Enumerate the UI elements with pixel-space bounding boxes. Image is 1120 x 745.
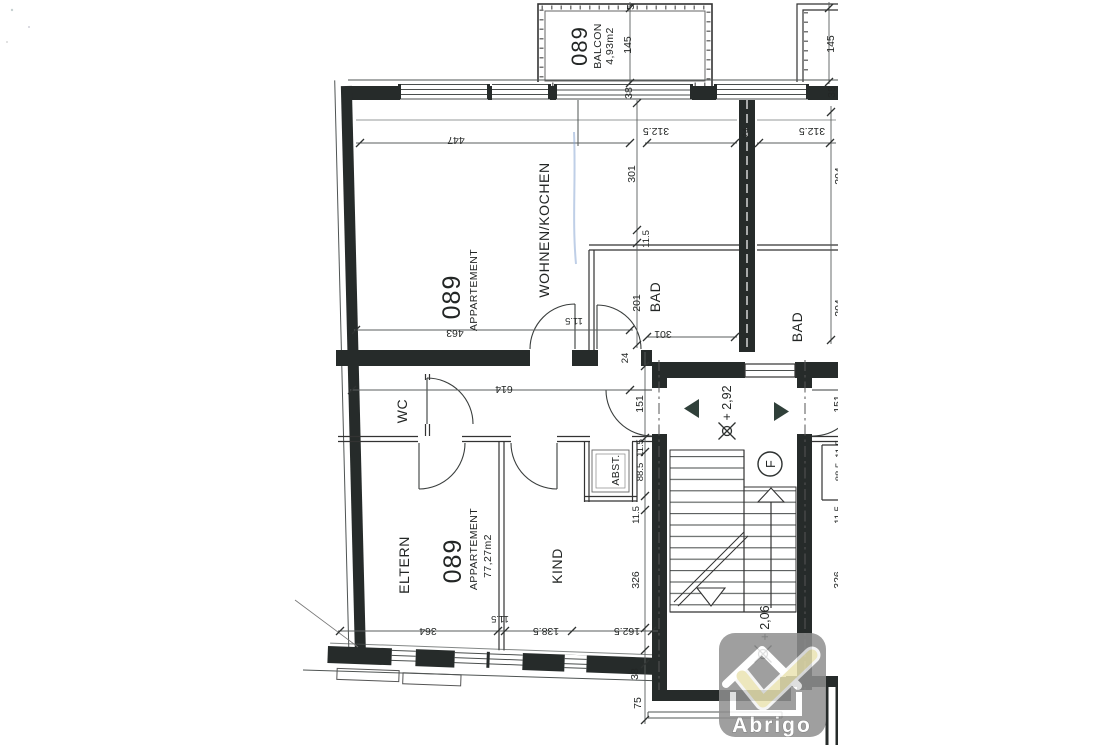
dim-entry-wall: 24 bbox=[620, 353, 631, 364]
dim-partition: 11.5 bbox=[491, 613, 509, 624]
dim-hall-height: 151 bbox=[634, 395, 646, 413]
balcony-area: 4,93m2 bbox=[604, 27, 616, 64]
dim-bath-width: 301 bbox=[654, 328, 672, 340]
upper-apartment-type: APPARTEMENT bbox=[468, 249, 480, 331]
dim-hall-width: 614 bbox=[495, 383, 513, 395]
dim-parents-width: 364 bbox=[419, 625, 437, 637]
dim-wall-a: 11.5 bbox=[641, 230, 652, 248]
stair-window bbox=[745, 364, 795, 377]
dim-hall-upper-left: 312.5 bbox=[643, 125, 669, 137]
window bbox=[454, 649, 523, 672]
pen-mark bbox=[574, 132, 576, 264]
watermark-brand: Abrigo bbox=[732, 714, 812, 737]
dim-storage-height: 88.5 bbox=[635, 463, 646, 482]
mid-wall bbox=[336, 350, 838, 378]
lower-apartment-area: 77,27m2 bbox=[482, 534, 494, 578]
elevator-letter: F bbox=[764, 460, 778, 468]
dim-separating-wall: 24 bbox=[741, 128, 752, 139]
room-parents: ELTERN bbox=[396, 536, 412, 594]
window bbox=[398, 82, 490, 102]
room-storage: ABST. bbox=[610, 454, 622, 485]
dim-lower-width: 463 bbox=[446, 327, 464, 339]
balcony-name: BALCON bbox=[592, 23, 604, 69]
lower-apartment-type: APPARTEMENT bbox=[468, 508, 480, 590]
dim-storage-wall: 11.5 bbox=[635, 439, 646, 457]
dim-living-width: 447 bbox=[447, 134, 465, 146]
room-living-kitchen: WOHNEN/KOCHEN bbox=[536, 162, 552, 297]
dim-balcony2-wall: 38 bbox=[826, 86, 838, 98]
dim-child-height: 326 bbox=[630, 571, 642, 589]
room-wc: WC bbox=[394, 399, 410, 424]
lower-apartment-number: 089 bbox=[439, 539, 467, 584]
floor-plan-canvas: 089 BALCON 4,93m2 089 APPARTEMENT WOHNEN… bbox=[0, 0, 1120, 745]
window bbox=[564, 655, 587, 675]
dim-living-height: 301 bbox=[626, 165, 638, 183]
bottom-wall bbox=[327, 643, 660, 693]
room-child: KIND bbox=[549, 548, 565, 584]
dim-bath-height: 201 bbox=[631, 294, 643, 312]
dim-base-offset: 75 bbox=[632, 697, 644, 709]
dim-entry-width: 11.5 bbox=[565, 315, 583, 326]
direction-arrow-left-icon bbox=[684, 399, 699, 418]
dim-balcony-height: 145 bbox=[622, 36, 634, 54]
dim-hall-upper-right: 312.5 bbox=[799, 125, 825, 137]
top-wall bbox=[348, 80, 838, 102]
window bbox=[391, 646, 416, 668]
dim-top-cut: 5 bbox=[625, 4, 637, 10]
upper-apartment-number: 089 bbox=[438, 275, 466, 320]
room-bath-neighbor: BAD bbox=[789, 312, 805, 343]
dim-base-wall: 38 bbox=[629, 668, 641, 680]
crop-mask bbox=[838, 0, 1120, 745]
dim-top-wall: 38 bbox=[623, 87, 635, 99]
level-marker-icon bbox=[719, 423, 736, 440]
dim-stair-width: 162.5 bbox=[614, 625, 640, 637]
dim-balcony2-height: 145 bbox=[825, 35, 837, 53]
balcony-number: 089 bbox=[567, 26, 592, 66]
dim-child-width: 138.5 bbox=[533, 625, 559, 637]
scan-noise bbox=[6, 9, 30, 43]
stair-level-upper: + 2,92 bbox=[720, 385, 734, 420]
window bbox=[714, 82, 809, 102]
rooms-north-wall bbox=[338, 374, 652, 442]
direction-arrow-right-icon bbox=[774, 402, 789, 421]
watermark-logo: Abrigo bbox=[719, 633, 826, 737]
left-wall bbox=[335, 80, 366, 660]
window bbox=[492, 82, 551, 102]
dim-wall-b: 11.5 bbox=[631, 506, 642, 524]
room-bath: BAD bbox=[647, 282, 663, 313]
